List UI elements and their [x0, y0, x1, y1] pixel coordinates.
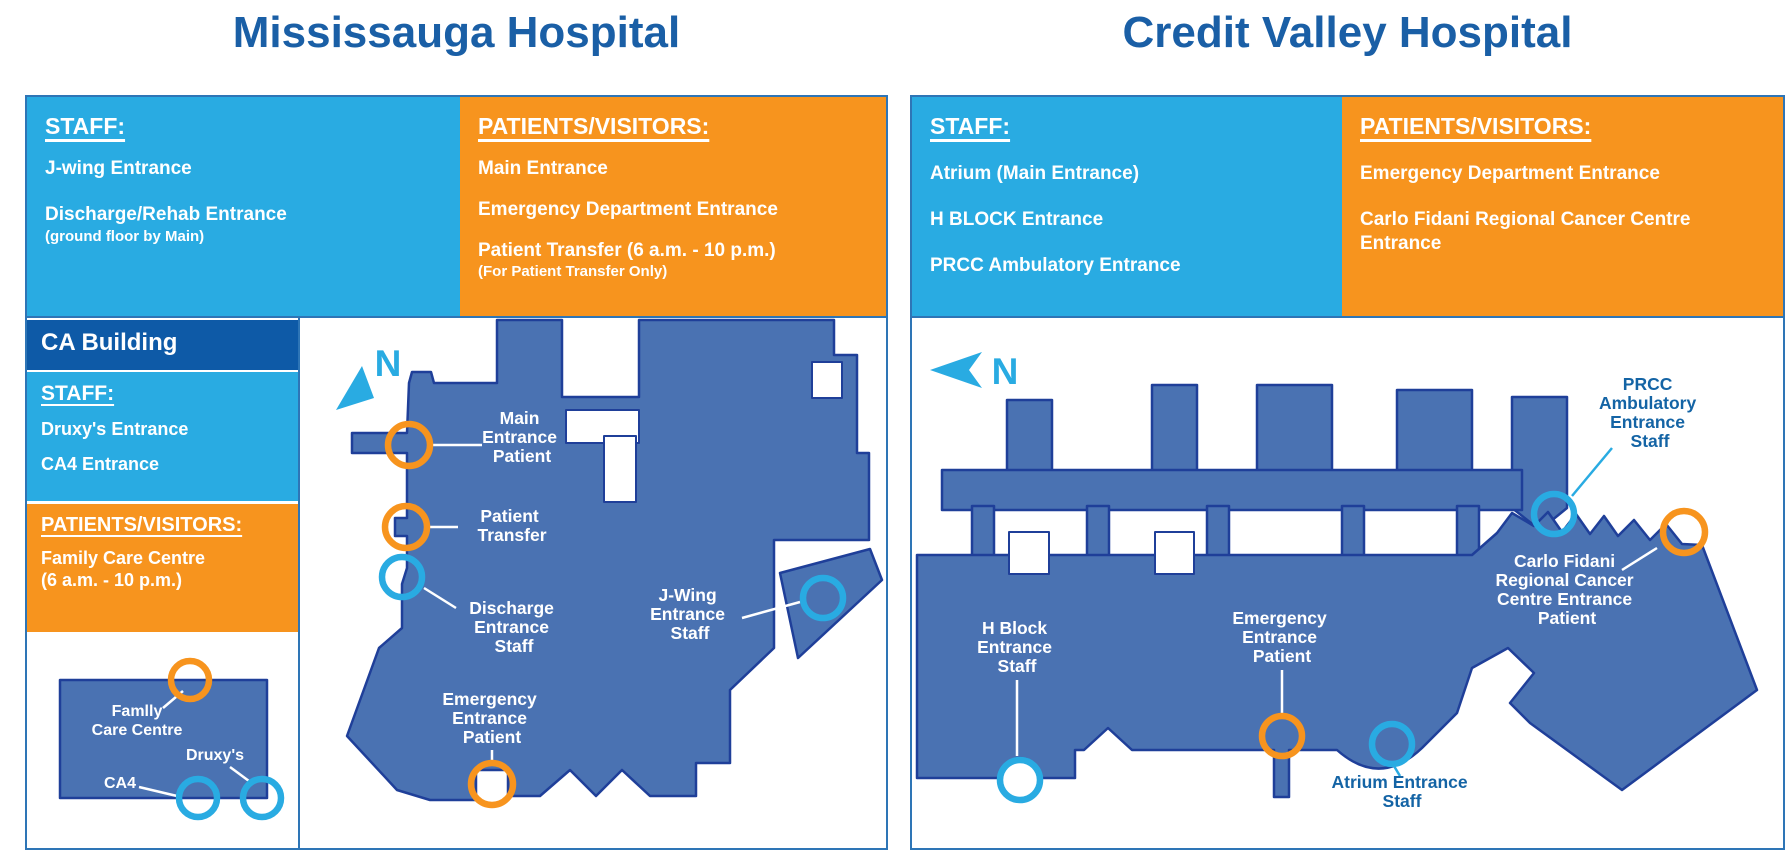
- atrium-entrance-label: Atrium Entrance Staff: [1331, 772, 1472, 811]
- ca4-label: CA4: [104, 775, 136, 792]
- patients-heading: PATIENTS/VISITORS:: [478, 113, 868, 140]
- mississauga-patients-box: PATIENTS/VISITORS: Main Entrance Emergen…: [460, 97, 886, 316]
- mississauga-building-footprint: [347, 320, 869, 800]
- mississauga-legend-row: STAFF: J-wing Entrance Discharge/Rehab E…: [27, 97, 886, 318]
- staff-heading: STAFF:: [930, 113, 1324, 140]
- patients-heading: PATIENTS/VISITORS:: [1360, 113, 1765, 140]
- ca-building-header: CA Building: [27, 320, 298, 370]
- tower-block: [1007, 400, 1052, 474]
- ca-building-column: CA Building STAFF: Druxy's Entrance CA4 …: [27, 318, 300, 848]
- mississauga-title: Mississauga Hospital: [25, 8, 888, 58]
- compass-arrow-icon: [930, 352, 982, 388]
- staff-item: J-wing Entrance: [45, 157, 442, 181]
- connector-wing: [972, 506, 994, 558]
- patients-item-note: (For Patient Transfer Only): [478, 263, 868, 280]
- ca-patients-box: PATIENTS/VISITORS: Family Care Centre (6…: [27, 504, 298, 632]
- credit-valley-site-map: N H Block Entrance Staff Emergency Entra…: [912, 318, 1779, 846]
- patients-item: Emergency Department Entrance: [1360, 162, 1765, 186]
- patient-transfer-label: Patient Transfer: [477, 506, 546, 545]
- ca-staff-item: Druxy's Entrance: [41, 419, 284, 441]
- connector-wing: [1207, 506, 1229, 558]
- druxys-label: Druxy's: [186, 747, 244, 764]
- patients-item: Patient Transfer (6 a.m. - 10 p.m.): [478, 239, 868, 263]
- credit-valley-staff-box: STAFF: Atrium (Main Entrance) H BLOCK En…: [912, 97, 1342, 316]
- compass-arrow-icon: [336, 366, 374, 410]
- courtyard-notch: [812, 362, 842, 398]
- patients-item: Carlo Fidani Regional Cancer Centre Entr…: [1360, 208, 1705, 256]
- compass-north-label: N: [375, 343, 402, 384]
- courtyard-notch: [1155, 532, 1194, 574]
- ca-patients-heading: PATIENTS/VISITORS:: [41, 514, 284, 537]
- credit-valley-legend-row: STAFF: Atrium (Main Entrance) H BLOCK En…: [912, 97, 1783, 318]
- staff-item: PRCC Ambulatory Entrance: [930, 254, 1324, 278]
- credit-valley-patients-box: PATIENTS/VISITORS: Emergency Department …: [1342, 97, 1783, 316]
- staff-item: H BLOCK Entrance: [930, 208, 1324, 232]
- courtyard-notch: [1009, 532, 1049, 574]
- patients-item: Emergency Department Entrance: [478, 198, 868, 222]
- ca-patients-item: Family Care Centre: [41, 548, 284, 570]
- ca-staff-item: CA4 Entrance: [41, 454, 284, 476]
- prcc-ambulatory-entrance-label: PRCC Ambulatory Entrance Staff: [1599, 374, 1701, 451]
- staff-heading: STAFF:: [45, 113, 442, 140]
- tower-block: [1152, 385, 1197, 474]
- staff-item: Atrium (Main Entrance): [930, 162, 1324, 186]
- tower-block: [1257, 385, 1332, 474]
- credit-valley-panel: STAFF: Atrium (Main Entrance) H BLOCK En…: [910, 95, 1785, 850]
- mississauga-panel: STAFF: J-wing Entrance Discharge/Rehab E…: [25, 95, 888, 850]
- h-block-entrance-marker: [1000, 760, 1040, 800]
- mississauga-staff-box: STAFF: J-wing Entrance Discharge/Rehab E…: [27, 97, 460, 316]
- prcc-leader-line: [1572, 448, 1612, 496]
- mississauga-site-map: N Main Entrance Patient Patient Transfer…: [300, 318, 884, 846]
- ca-staff-heading: STAFF:: [41, 382, 284, 406]
- tower-block: [1397, 390, 1472, 474]
- connector-wing: [1087, 506, 1109, 558]
- credit-valley-title: Credit Valley Hospital: [910, 8, 1785, 58]
- corridor-band: [942, 470, 1522, 510]
- compass-north-label: N: [992, 351, 1019, 392]
- ca-building-footprint: [60, 680, 267, 798]
- staff-item: Discharge/Rehab Entrance: [45, 203, 442, 227]
- patients-item: Main Entrance: [478, 157, 868, 181]
- courtyard-notch: [604, 436, 636, 502]
- ca-staff-box: STAFF: Druxy's Entrance CA4 Entrance: [27, 372, 298, 501]
- ca-patients-item-hours: (6 a.m. - 10 p.m.): [41, 570, 284, 592]
- ca-building-minimap: FamllyCare Centre Druxy's CA4: [27, 636, 296, 848]
- staff-item-note: (ground floor by Main): [45, 228, 442, 245]
- connector-wing: [1342, 506, 1364, 558]
